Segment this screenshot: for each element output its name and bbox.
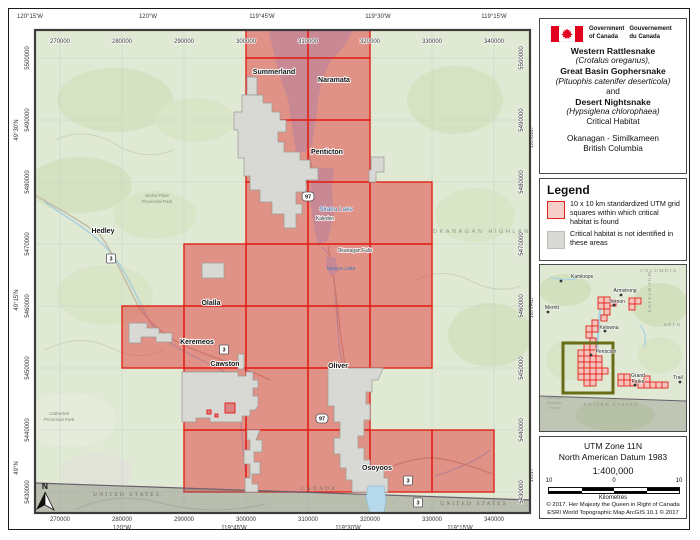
- lon-label-top: 119°30'W: [365, 14, 391, 20]
- lon-label-bottom: 119°15'W: [447, 526, 473, 532]
- place-naramata: Naramata: [318, 77, 350, 84]
- datum-text: North American Datum 1983: [540, 452, 686, 463]
- inset-city-kamloops: Kamloops: [571, 274, 594, 280]
- easting-label-bottom: 300000: [236, 517, 257, 523]
- northing-label-left: 5450000: [25, 356, 31, 380]
- easting-label-bottom: 270000: [50, 517, 71, 523]
- northing-label: 5460000: [519, 294, 525, 318]
- place-summerland: Summerland: [253, 69, 295, 76]
- northing-label-left: 5460000: [25, 294, 31, 318]
- northing-label: 5480000: [519, 170, 525, 194]
- inset-city-armstrong: Armstrong: [613, 288, 636, 294]
- gov-text-fr: Gouvernement du Canada: [629, 26, 671, 41]
- title-line: Desert Nightsnake: [540, 97, 686, 107]
- gov-en-line2: of Canada: [589, 34, 624, 42]
- highway-97-shield-icon: 97: [316, 414, 328, 423]
- scale-bar-unit: Kilometres: [540, 495, 686, 501]
- title-province-line: British Columbia: [540, 144, 686, 154]
- title-line: Western Rattlesnake: [540, 46, 686, 56]
- inset-city-grand-forks-2: Forks: [632, 379, 645, 385]
- northing-label: 5450000: [519, 356, 525, 380]
- lon-label-bottom: 120°W: [113, 526, 131, 532]
- label-cathedral-park: Cathedral: [49, 411, 70, 416]
- northing-label-left: 5480000: [25, 170, 31, 194]
- easting-label-bottom: 320000: [360, 517, 381, 523]
- utm-grid-cell: [370, 182, 432, 244]
- lon-label-top: 119°15'W: [481, 14, 507, 20]
- gov-text-en: Government of Canada: [589, 26, 624, 41]
- legend-item-not-identified-text: Critical habitat is not identified in th…: [570, 230, 680, 248]
- map-canvas: 3 3 3 3 97 97 Su: [24, 30, 533, 513]
- easting-label: 300000: [236, 39, 257, 45]
- scale-bar-left-label: 10: [546, 478, 553, 484]
- easting-label: 320000: [360, 39, 381, 45]
- place-kaleden: Kaleden: [316, 216, 335, 222]
- place-hedley: Hedley: [92, 228, 115, 235]
- easting-label-bottom: 280000: [112, 517, 133, 523]
- utm-grid-cell: [308, 58, 370, 120]
- label-okanagan-highland: OKANAGAN HIGHLAND: [433, 229, 533, 235]
- title-line: Critical Habitat: [540, 117, 686, 127]
- label-united-states-east: UNITED STATES: [440, 501, 508, 507]
- inset-map: Kamloops Armstrong Vernon Merritt Kelown…: [540, 265, 686, 431]
- scale-bar: 10 0 10 Kilometres: [540, 478, 686, 500]
- title-line: (Pituophis catenifer deserticola): [540, 77, 686, 87]
- scale-bar-zero-label: 0: [612, 478, 615, 484]
- utm-zone-text: UTM Zone 11N: [540, 441, 686, 452]
- shield-label: 97: [305, 195, 311, 201]
- easting-label-bottom: 290000: [174, 517, 195, 523]
- lon-label-bottom: 119°30'W: [335, 526, 361, 532]
- easting-label: 330000: [422, 39, 443, 45]
- scale-ratio-text: 1:400,000: [540, 466, 686, 476]
- lon-label-top: 120°15'W: [17, 14, 43, 20]
- easting-label-bottom: 340000: [484, 517, 505, 523]
- lat-label-right: 49°30'N: [532, 127, 533, 148]
- utm-grid-cell: [246, 306, 308, 368]
- gov-en-line1: Government: [589, 26, 624, 34]
- utm-grid-cell: [432, 430, 494, 492]
- northing-label-left: 5500000: [25, 46, 31, 70]
- title-line: and: [540, 87, 686, 97]
- highway-3-shield-icon: 3: [107, 254, 116, 263]
- northing-label: 5470000: [519, 232, 525, 256]
- easting-label: 290000: [174, 39, 195, 45]
- scale-bar-graphic: [548, 487, 680, 494]
- legend-heading: Legend: [547, 183, 686, 197]
- shield-label: 3: [406, 479, 409, 485]
- inset-city-vernon: Vernon: [609, 299, 625, 305]
- place-cawston: Cawston: [210, 361, 239, 368]
- not-identified-swatch-icon: [547, 231, 565, 249]
- shield-label: 3: [109, 257, 112, 263]
- place-osoyoos: Osoyoos: [362, 465, 392, 472]
- easting-label: 270000: [50, 39, 71, 45]
- label-nickel-plate-park: Nickel Plate: [145, 193, 170, 198]
- place-okanagan-falls: Okanagan Falls: [337, 248, 373, 254]
- map-title: Western Rattlesnake (Crotalus oreganus),…: [540, 46, 686, 154]
- highway-3-shield-icon: 3: [414, 498, 423, 507]
- label-nickel-plate-park-2: Provincial Park: [142, 199, 173, 204]
- title-region-line: Okanagan - Similkameen: [540, 134, 686, 144]
- government-signature: Government of Canada Gouvernement du Can…: [550, 26, 682, 42]
- copyright-text: © 2017. Her Majesty the Queen in Right o…: [540, 502, 686, 518]
- map-page: 3 3 3 3 97 97 Su: [0, 0, 700, 540]
- label-skaha-lake: Skaha Lake: [319, 206, 353, 213]
- northing-label-left: 5430000: [25, 480, 31, 504]
- label-vaseux-lake: Vaseux Lake: [327, 266, 356, 272]
- highway-97-shield-icon: 97: [302, 192, 314, 201]
- easting-label-bottom: 330000: [422, 517, 443, 523]
- legend-item-not-identified: Critical habitat is not identified in th…: [547, 230, 682, 249]
- northing-label: 5430000: [519, 480, 525, 504]
- label-canada: CANADA: [301, 486, 337, 492]
- canada-flag-icon: [550, 26, 584, 42]
- utm-grid-cell: [184, 430, 246, 492]
- title-line: Great Basin Gophersnake: [540, 66, 686, 76]
- place-keremeos: Keremeos: [180, 339, 214, 346]
- lat-label-right: 49°N: [532, 469, 533, 482]
- legend-item-habitat-text: 10 x 10 km standardized UTM grid squares…: [570, 200, 680, 226]
- utm-grid-cell: [184, 306, 246, 368]
- inset-map-panel: Kamloops Armstrong Vernon Merritt Kelown…: [539, 264, 687, 432]
- utm-grid-cell: [308, 182, 370, 244]
- highway-3-shield-icon: 3: [404, 476, 413, 485]
- inset-label-selkirk: SELK: [664, 322, 682, 327]
- shield-label: 3: [416, 501, 419, 507]
- shield-label: 3: [222, 348, 225, 354]
- inset-city-kelowna: Kelowna: [599, 325, 618, 331]
- utm-grid-cell: [308, 306, 370, 368]
- lat-label-left: 49°30'N: [14, 119, 20, 140]
- lon-label-top: 120°W: [139, 14, 157, 20]
- northing-label-left: 5440000: [25, 418, 31, 442]
- main-map: 3 3 3 3 97 97 Su: [8, 8, 533, 532]
- legend-panel: Legend 10 x 10 km standardized UTM grid …: [539, 178, 687, 261]
- inset-city-merritt: Merritt: [545, 305, 560, 311]
- habitat-swatch-icon: [547, 201, 565, 219]
- inset-label-columbia: COLUMBIA: [640, 268, 677, 273]
- northing-label: 5440000: [519, 418, 525, 442]
- utm-grid-cell: [246, 244, 308, 306]
- utm-grid-cell: [370, 306, 432, 368]
- highway-3-shield-icon: 3: [220, 345, 229, 354]
- copyright-line-2: ESRI World Topographic Map ArcGIS 10.1 ©…: [540, 510, 686, 518]
- title-line: (Hypsiglena chlorophaea): [540, 107, 686, 117]
- easting-label: 340000: [484, 39, 505, 45]
- lon-label-top: 119°45'W: [249, 14, 275, 20]
- lon-label-bottom: 119°45'W: [221, 526, 247, 532]
- place-penticton: Penticton: [311, 149, 343, 156]
- title-panel: Government of Canada Gouvernement du Can…: [539, 18, 687, 174]
- easting-label: 280000: [112, 39, 133, 45]
- north-arrow-label: N: [42, 481, 48, 491]
- projection-panel: UTM Zone 11N North American Datum 1983 1…: [539, 436, 687, 519]
- gov-fr-line2: du Canada: [629, 34, 671, 42]
- osoyoos-lake: [366, 486, 386, 513]
- place-olalla: Olalla: [201, 300, 220, 307]
- inset-label-mountains: MOUNTAINS: [647, 272, 652, 314]
- shield-label: 97: [319, 417, 325, 423]
- northing-label: 5500000: [519, 46, 525, 70]
- scale-bar-right-label: 10: [676, 478, 683, 484]
- lat-label-left: 49°N: [14, 461, 20, 474]
- easting-label: 310000: [298, 39, 319, 45]
- northing-label-left: 5490000: [25, 108, 31, 132]
- gov-fr-line1: Gouvernement: [629, 26, 671, 34]
- place-oliver: Oliver: [328, 363, 348, 370]
- label-cathedral-park-2: Provincial Park: [44, 417, 75, 422]
- inset-label-forest-3: Forest: [548, 405, 560, 410]
- utm-grid-cell: [370, 244, 432, 306]
- easting-label-bottom: 310000: [298, 517, 319, 523]
- inset-city-penticton: Penticton: [596, 349, 617, 355]
- northing-label-left: 5470000: [25, 232, 31, 256]
- inset-city-trail: Trail: [673, 375, 683, 381]
- lat-label-right: 49°15'N: [532, 297, 533, 318]
- legend-item-habitat: 10 x 10 km standardized UTM grid squares…: [547, 200, 682, 226]
- label-united-states-west: UNITED STATES: [93, 492, 161, 498]
- title-line: (Crotalus oreganus),: [540, 56, 686, 66]
- inkaneep-gray-area: [182, 372, 258, 422]
- lat-label-left: 49°15'N: [14, 289, 20, 310]
- inset-label-united-states: UNITED STATES: [583, 402, 638, 407]
- northing-label: 5490000: [519, 108, 525, 132]
